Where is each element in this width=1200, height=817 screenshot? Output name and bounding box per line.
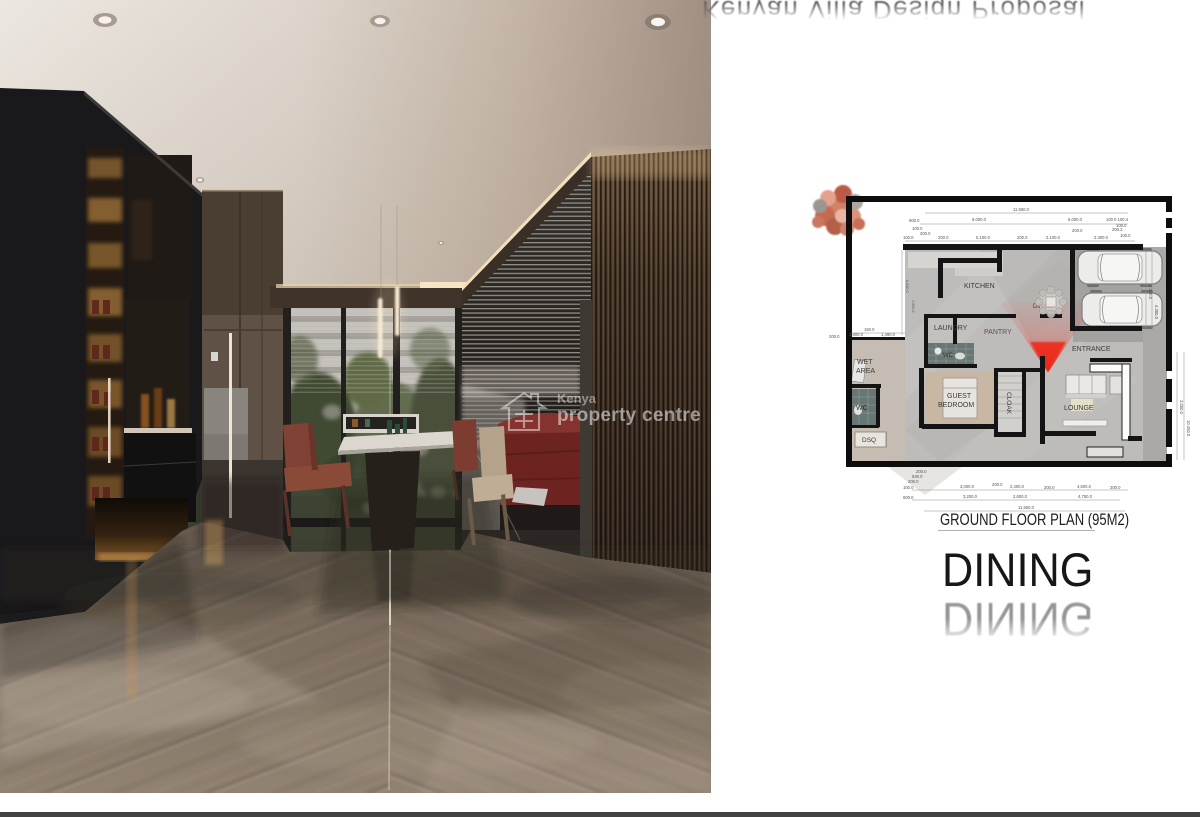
- svg-text:WET: WET: [857, 359, 873, 366]
- svg-text:ENTRANCE: ENTRANCE: [1072, 346, 1111, 353]
- svg-text:200.0: 200.0: [920, 231, 931, 236]
- svg-text:BEDROOM: BEDROOM: [938, 402, 974, 409]
- svg-text:200.2: 200.2: [1112, 227, 1123, 232]
- svg-text:600.0: 600.0: [903, 495, 914, 500]
- svg-text:11,550.0: 11,550.0: [1018, 505, 1035, 510]
- svg-text:CLOAK: CLOAK: [1005, 392, 1012, 415]
- svg-text:200.0: 200.0: [992, 482, 1003, 487]
- svg-text:3,000.0: 3,000.0: [960, 484, 975, 489]
- svg-text:Kenya: Kenya: [557, 391, 597, 406]
- svg-text:10.450.0: 10.450.0: [1186, 420, 1191, 437]
- svg-text:LAUNDRY: LAUNDRY: [934, 325, 968, 332]
- svg-text:GUEST: GUEST: [947, 393, 972, 400]
- svg-text:2,600.0: 2,600.0: [1013, 494, 1028, 499]
- svg-text:200.0: 200.0: [938, 235, 949, 240]
- svg-text:DSQ: DSQ: [862, 437, 876, 444]
- svg-text:100.0 100.4: 100.0 100.4: [1106, 217, 1129, 222]
- svg-text:6.000.0: 6.000.0: [905, 280, 909, 293]
- svg-text:9.000.0: 9.000.0: [972, 217, 987, 222]
- svg-text:11.550.0: 11.550.0: [1013, 207, 1030, 212]
- svg-text:WC: WC: [943, 353, 954, 359]
- svg-text:1,900.0: 1,900.0: [849, 332, 864, 337]
- svg-text:200.0: 200.0: [1017, 235, 1028, 240]
- svg-text:100.0: 100.0: [903, 485, 914, 490]
- svg-text:1.000.2: 1.000.2: [911, 300, 915, 313]
- svg-text:LOUNGE: LOUNGE: [1064, 405, 1094, 412]
- svg-text:200.0: 200.0: [1044, 485, 1055, 490]
- svg-text:100.0: 100.0: [1120, 233, 1131, 238]
- svg-text:KITCHEN: KITCHEN: [964, 283, 995, 290]
- svg-text:property centre: property centre: [557, 405, 701, 426]
- svg-text:5.100.0: 5.100.0: [976, 235, 991, 240]
- svg-text:100.0: 100.0: [903, 235, 914, 240]
- svg-text:PANTRY: PANTRY: [984, 329, 1012, 336]
- svg-text:4,500.0: 4,500.0: [1077, 484, 1092, 489]
- svg-text:900.0: 900.0: [909, 218, 920, 223]
- svg-text:WC: WC: [856, 405, 868, 412]
- svg-text:200.0: 200.0: [829, 334, 840, 339]
- svg-text:200.0: 200.0: [908, 479, 919, 484]
- svg-text:4,750.0: 4,750.0: [1078, 494, 1093, 499]
- svg-text:200.0: 200.0: [1110, 485, 1121, 490]
- svg-text:3.000.0: 3.000.0: [1179, 400, 1184, 415]
- svg-text:AREA: AREA: [856, 368, 875, 375]
- svg-text:1,490.0: 1,490.0: [881, 332, 896, 337]
- svg-text:2.300.0: 2.300.0: [1094, 235, 1109, 240]
- svg-text:2,400.0: 2,400.0: [1010, 484, 1025, 489]
- svg-text:2.100.0: 2.100.0: [1046, 235, 1061, 240]
- svg-text:2.300.0: 2.300.0: [1148, 285, 1153, 300]
- svg-text:4.300.0: 4.300.0: [1154, 305, 1159, 320]
- svg-text:150.0: 150.0: [864, 327, 875, 332]
- svg-text:200.0: 200.0: [1072, 228, 1083, 233]
- svg-text:5.000.0: 5.000.0: [1068, 217, 1083, 222]
- svg-text:3,200.0: 3,200.0: [963, 494, 978, 499]
